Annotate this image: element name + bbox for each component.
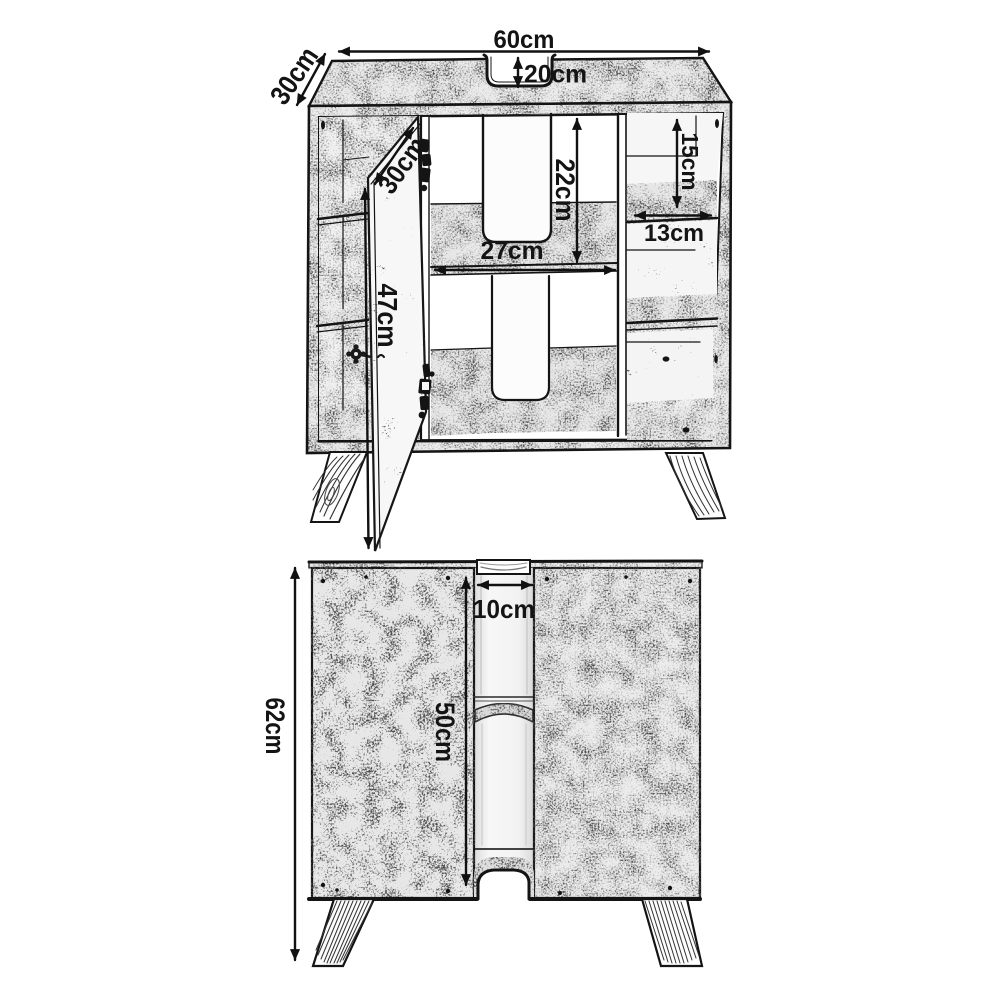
svg-text:10cm: 10cm [473, 594, 535, 624]
svg-text:60cm: 60cm [494, 26, 555, 54]
svg-text:47cm: 47cm [372, 284, 403, 348]
svg-text:50cm: 50cm [430, 702, 460, 762]
svg-text:13cm: 13cm [644, 220, 704, 247]
svg-text:27cm: 27cm [481, 237, 544, 265]
svg-text:62cm: 62cm [260, 698, 290, 755]
svg-text:20cm: 20cm [524, 61, 587, 89]
svg-text:22cm: 22cm [550, 159, 580, 222]
svg-text:15cm: 15cm [677, 133, 703, 191]
